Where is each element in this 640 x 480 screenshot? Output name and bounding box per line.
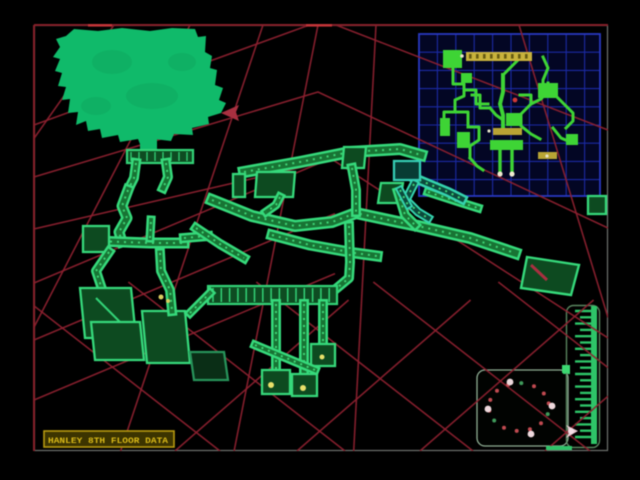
svg-text:HANLEY 8TH FLOOR DATA: HANLEY 8TH FLOOR DATA (48, 436, 169, 446)
